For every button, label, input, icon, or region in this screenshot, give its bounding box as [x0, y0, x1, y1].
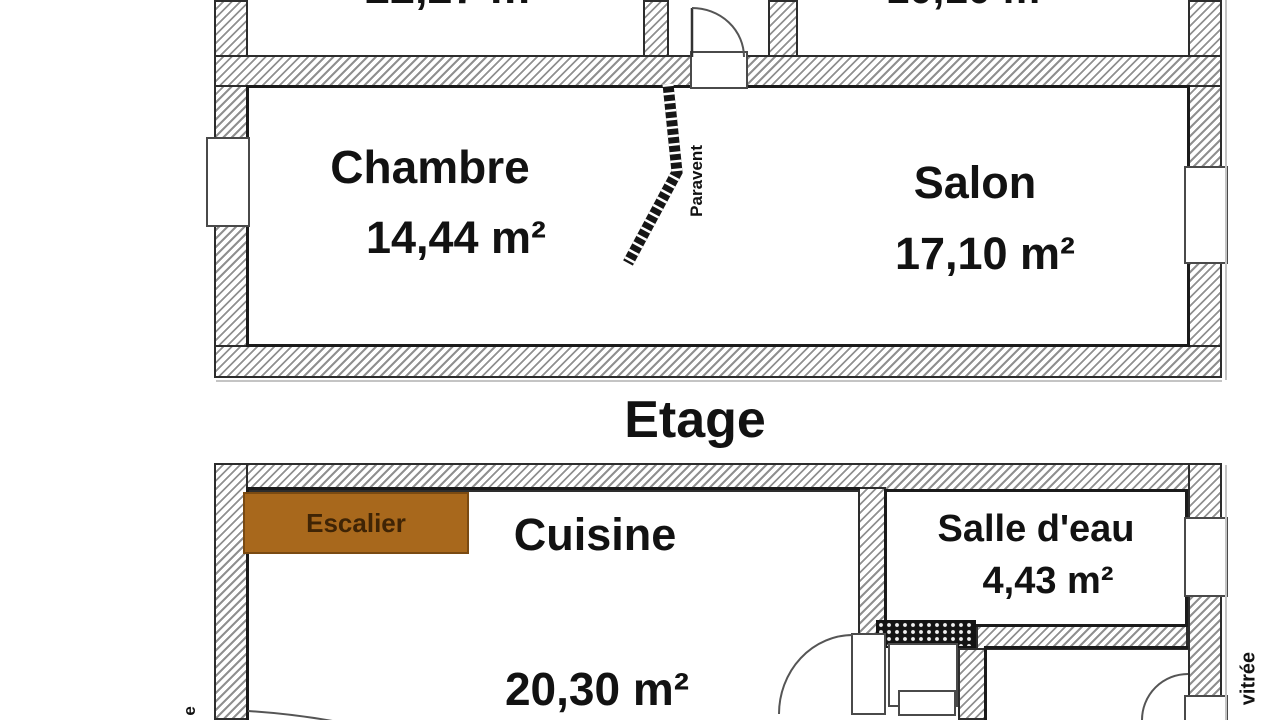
paravent-label: Paravent: [688, 121, 706, 241]
left-edge-label-fragment: e: [181, 689, 199, 720]
baie-vitree-label: vitrée: [1239, 619, 1260, 720]
cuisine-name-label: Cuisine: [475, 511, 715, 558]
floor-title: Etage: [575, 393, 815, 448]
salon-window: [1184, 166, 1228, 264]
upper-partial-area-label-left: 22,27 m²: [310, 0, 600, 11]
passage-fixture-lower: [898, 690, 956, 716]
upper-doorway-wall-stub-left: [643, 0, 669, 57]
chambre-area-label: 14,44 m²: [326, 214, 586, 261]
cuisine-area-label: 20,30 m²: [477, 665, 717, 713]
salon-area-label: 17,10 m²: [865, 230, 1105, 277]
cuisine-salle-eau-dividing-wall: [858, 487, 886, 635]
salon-name-label: Salon: [855, 159, 1095, 206]
chambre-window: [206, 137, 250, 227]
lower-right-room-outline: [984, 646, 1188, 720]
salle-eau-name-label: Salle d'eau: [916, 510, 1156, 550]
salle-eau-area-label: 4,43 m²: [928, 562, 1168, 602]
escalier-box: Escalier: [243, 492, 469, 554]
lower-right-room-left-wall: [958, 648, 986, 720]
upper-partial-area-label-right: 10,10 m²: [845, 0, 1095, 11]
upper-door-swing-arc: [692, 8, 744, 57]
lower-right-window: [1184, 695, 1228, 720]
upper-doorway-wall-stub-right: [768, 0, 798, 57]
floor-plan: 22,27 m² 10,10 m² Chambre 14,44 m² Salon…: [0, 0, 1280, 720]
upper-bottom-wall: [214, 345, 1222, 378]
upper-door-threshold: [690, 51, 748, 89]
salle-eau-window: [1184, 517, 1228, 597]
escalier-label: Escalier: [306, 508, 406, 539]
chambre-name-label: Chambre: [300, 143, 560, 191]
cuisine-door-leaf: [851, 633, 886, 715]
